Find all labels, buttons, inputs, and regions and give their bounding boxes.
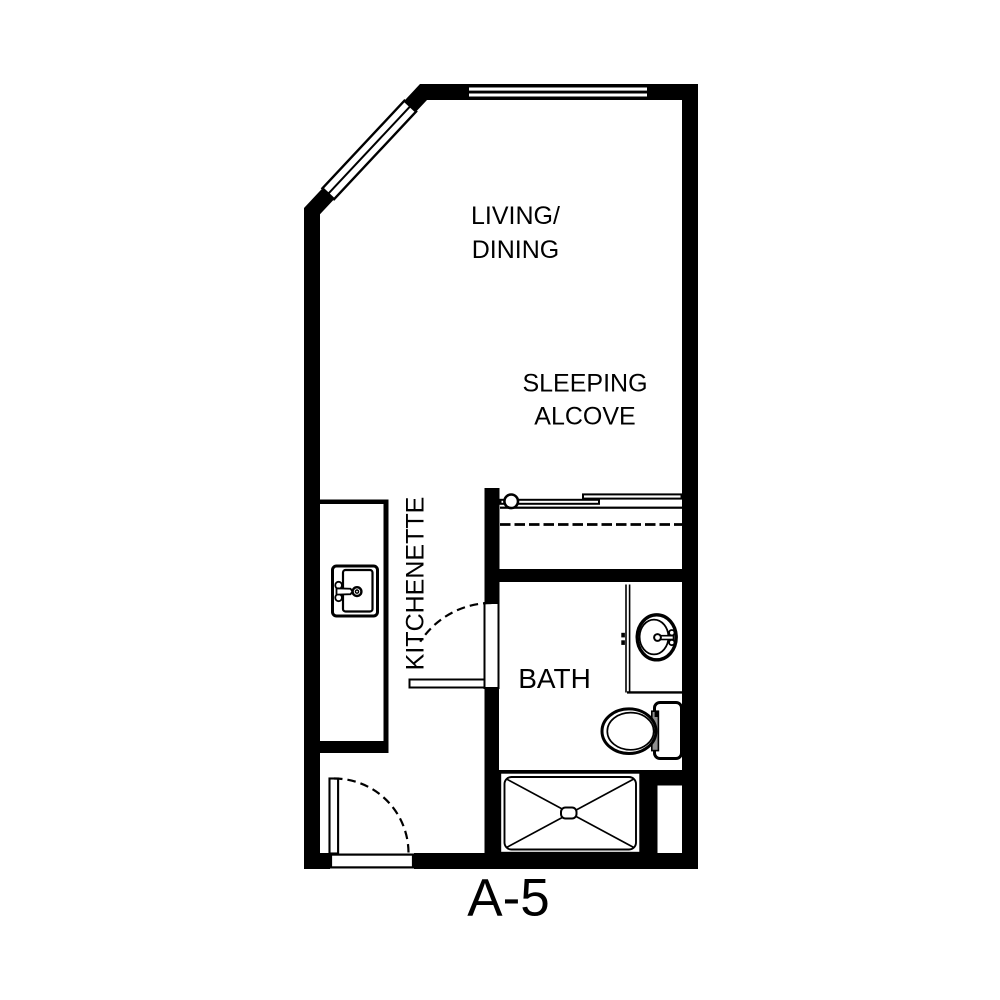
svg-text:LIVING/: LIVING/ bbox=[471, 202, 560, 230]
svg-text:DINING: DINING bbox=[472, 236, 560, 264]
svg-text:BATH: BATH bbox=[518, 663, 591, 694]
svg-text:KITCHENETTE: KITCHENETTE bbox=[402, 497, 430, 671]
svg-text:SLEEPING: SLEEPING bbox=[522, 370, 647, 398]
svg-text:ALCOVE: ALCOVE bbox=[534, 403, 635, 431]
svg-text:A-5: A-5 bbox=[467, 869, 549, 928]
